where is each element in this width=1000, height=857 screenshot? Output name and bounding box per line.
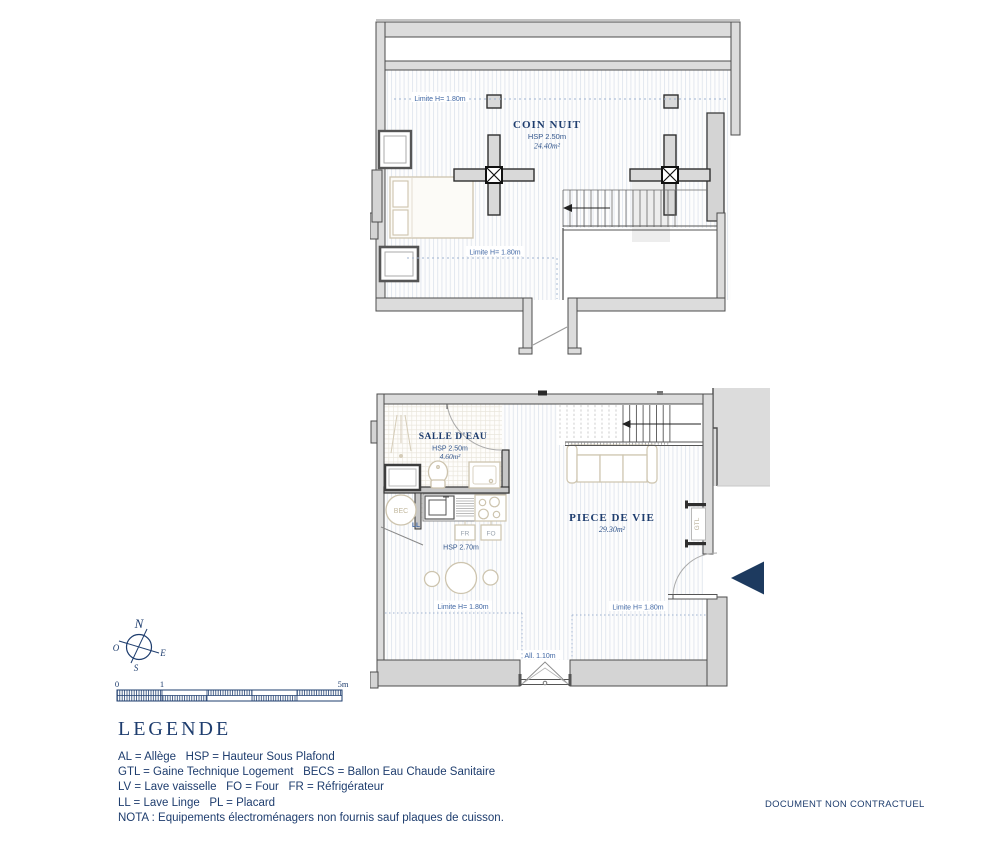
legend-title: LEGENDE [118,718,504,741]
wall-block [372,170,382,222]
scale-bar: 0 1 5m [112,679,352,707]
wall-tick-1 [538,391,547,396]
coin-nuit-label: COIN NUIT [513,119,581,131]
legend-line-al-hsp: AL = Allège HSP = Hauteur Sous Plafond [118,750,504,765]
coin-nuit-area: 24.40m² [534,142,561,151]
coin-nuit-hsp: HSP 2.50m [528,132,566,141]
bottom-window [519,662,572,686]
compass-south-label: S [134,663,139,673]
legend-line-nota: NOTA : Equipements électroménagers non f… [118,811,504,826]
scale-five-label: 5m [338,679,349,689]
bathroom-sink [429,461,448,488]
cooktop [475,495,506,521]
upper-floor-plan: Limite H= 1.80m Limite H= 1.80m COIN NUI… [370,15,750,360]
legend-line-gtl-becs: GTL = Gaine Technique Logement BECS = Ba… [118,765,504,780]
ll-label: LL [412,522,420,529]
shower-tray [469,462,500,488]
kitchen-hsp-label: HSP 2.70m [443,545,479,552]
oven-label: FO [486,531,495,538]
adjacent-mass [713,388,770,486]
lower-limit-right-label: Limite H= 1.80m [612,605,663,612]
kitchen-counter [423,494,506,521]
entrance-arrow-icon [731,562,764,595]
compass-rose: N O E S [110,614,174,674]
bec-label: BEC [394,508,408,515]
legend-block: LEGENDE AL = Allège HSP = Hauteur Sous P… [118,718,504,826]
compass-west-label: O [113,643,120,653]
window-bay-2 [380,247,418,281]
scale-zero-label: 0 [115,679,119,689]
sofa [567,445,657,483]
legend-line-ll-pl: LL = Lave Linge PL = Placard [118,796,504,811]
washing-machine [385,465,420,490]
salle-deau-label: SALLE D'EAU [419,432,488,442]
upper-limit-bottom-label: Limite H= 1.80m [469,250,520,257]
lower-limit-left-label: Limite H= 1.80m [437,604,488,611]
post-right [664,95,678,108]
wall-tick-2 [657,391,663,395]
chimney [519,298,581,354]
floor-plan-sheet: Limite H= 1.80m Limite H= 1.80m COIN NUI… [0,0,1000,857]
allege-label: All. 1.10m [524,653,555,660]
bed [390,177,473,238]
compass-east-label: E [159,648,166,658]
post-left [487,95,501,108]
legend-line-lv-fo-fr: LV = Lave vaisselle FO = Four FR = Réfri… [118,780,504,795]
footer-disclaimer: DOCUMENT NON CONTRACTUEL [765,799,925,810]
window-bay-1 [379,131,411,168]
fridge-label: FR [461,531,470,538]
compass-north-label: N [134,616,145,631]
scale-bar-body [117,690,342,701]
piece-de-vie-area: 29.30m² [599,525,626,534]
piece-de-vie-label: PIECE DE VIE [569,512,655,524]
salle-deau-area: 4.60m² [440,452,462,461]
lower-floor-plan: FR FO BEC LL [370,388,770,708]
gtl-label: GTL [694,517,701,530]
upper-limit-top-label: Limite H= 1.80m [414,96,465,103]
scale-one-label: 1 [160,679,164,689]
